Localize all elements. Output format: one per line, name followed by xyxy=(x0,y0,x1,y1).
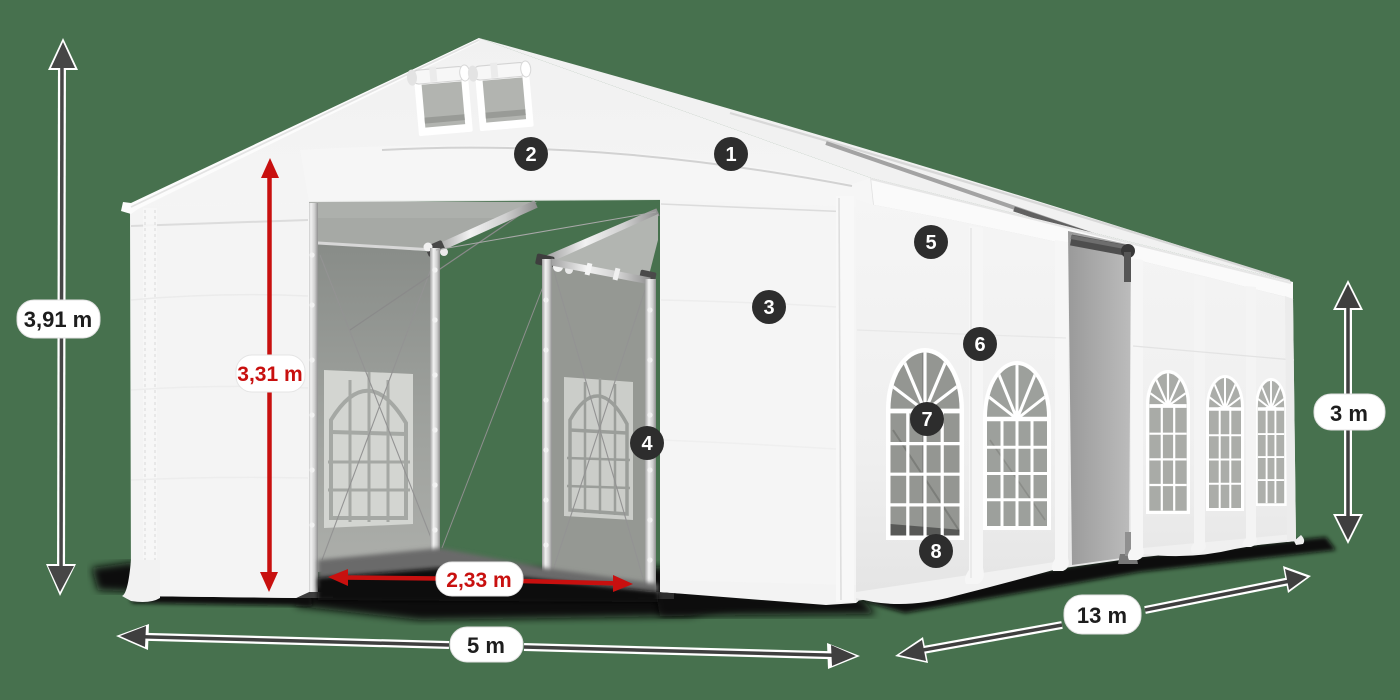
svg-text:7: 7 xyxy=(921,409,932,431)
svg-text:3,91 m: 3,91 m xyxy=(24,307,93,332)
svg-text:3,31 m: 3,31 m xyxy=(237,363,302,386)
svg-text:13 m: 13 m xyxy=(1077,603,1127,628)
svg-text:3 m: 3 m xyxy=(1330,401,1368,426)
svg-text:6: 6 xyxy=(974,334,985,356)
svg-text:4: 4 xyxy=(641,433,653,455)
svg-text:3: 3 xyxy=(763,297,774,319)
svg-text:5: 5 xyxy=(925,232,936,254)
svg-text:8: 8 xyxy=(930,541,941,563)
svg-text:2: 2 xyxy=(525,144,536,166)
svg-text:1: 1 xyxy=(725,144,736,166)
svg-text:5 m: 5 m xyxy=(467,633,505,658)
svg-text:2,33 m: 2,33 m xyxy=(446,569,511,592)
